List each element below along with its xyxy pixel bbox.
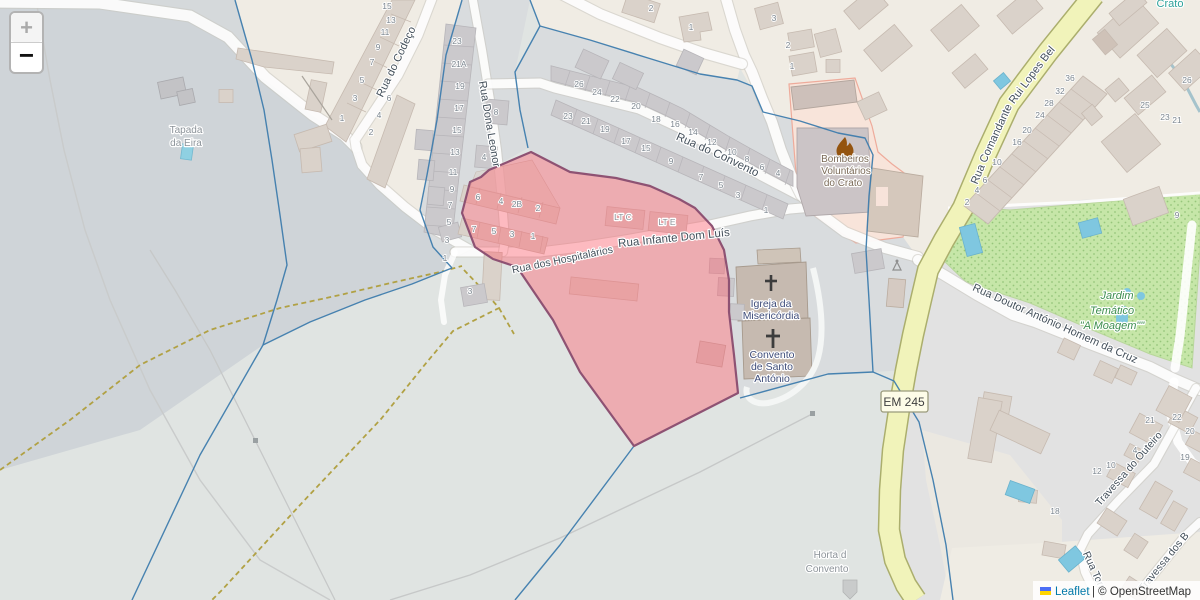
svg-text:4: 4 [975,185,980,195]
svg-text:de Santo: de Santo [751,361,793,373]
svg-text:Bombeiros: Bombeiros [821,154,869,165]
svg-text:7: 7 [699,172,704,182]
svg-text:20: 20 [631,101,641,111]
svg-text:LT C: LT C [614,212,632,222]
svg-text:1: 1 [689,22,694,32]
svg-text:4: 4 [377,110,382,120]
svg-text:3: 3 [772,13,777,23]
svg-text:25: 25 [1140,100,1150,110]
svg-text:15: 15 [382,1,392,11]
svg-text:16: 16 [670,119,680,129]
svg-text:21: 21 [1145,415,1155,425]
svg-text:António: António [754,373,790,385]
svg-text:16: 16 [1012,137,1022,147]
svg-text:7: 7 [472,224,477,234]
svg-text:Convento: Convento [806,564,849,575]
svg-text:da Eira: da Eira [170,138,202,149]
svg-text:4: 4 [1133,445,1138,455]
svg-text:3: 3 [353,93,358,103]
svg-text:1: 1 [790,61,795,71]
svg-text:36: 36 [1065,73,1075,83]
svg-text:24: 24 [592,87,602,97]
svg-text:23: 23 [452,36,462,46]
svg-text:6: 6 [387,93,392,103]
svg-text:1: 1 [340,113,345,123]
svg-text:32: 32 [1055,86,1065,96]
svg-text:5: 5 [447,217,452,227]
svg-text:Voluntários: Voluntários [821,166,870,177]
svg-text:24: 24 [1035,110,1045,120]
svg-text:6: 6 [476,192,481,202]
svg-text:15: 15 [641,143,651,153]
svg-text:do Crato: do Crato [824,178,863,189]
svg-text:2: 2 [965,197,970,207]
svg-text:| © OpenStreetMap: | © OpenStreetMap [1092,586,1191,598]
svg-text:Igreja da: Igreja da [751,298,792,310]
svg-text:3: 3 [468,286,473,296]
svg-text:2: 2 [536,203,541,213]
svg-text:LT E: LT E [658,217,675,227]
svg-text:Horta d: Horta d [814,550,847,561]
svg-text:21A: 21A [451,59,466,69]
svg-text:23: 23 [563,111,573,121]
svg-text:10: 10 [727,147,737,157]
svg-text:9: 9 [450,184,455,194]
svg-text:17: 17 [454,103,464,113]
svg-text:20: 20 [1185,426,1195,436]
svg-text:Tapada: Tapada [170,125,203,136]
svg-text:10: 10 [1106,460,1116,470]
svg-text:5: 5 [360,75,365,85]
svg-text:22: 22 [610,94,620,104]
svg-text:8: 8 [494,107,499,117]
svg-text:18: 18 [1050,506,1060,516]
svg-text:7: 7 [370,57,375,67]
svg-text:Jardim: Jardim [1099,290,1133,302]
svg-text:3: 3 [445,235,450,245]
svg-text:6: 6 [983,175,988,185]
svg-text:26: 26 [574,79,584,89]
svg-text:4: 4 [776,168,781,178]
svg-text:7: 7 [448,200,453,210]
svg-text:EM 245: EM 245 [883,395,925,409]
svg-text:26: 26 [1182,75,1192,85]
svg-text:17: 17 [621,136,631,146]
svg-text:Misericórdia: Misericórdia [743,310,800,322]
svg-text:Leaflet: Leaflet [1055,586,1090,598]
svg-text:+: + [20,15,33,40]
svg-text:2: 2 [369,127,374,137]
svg-text:10: 10 [992,157,1002,167]
svg-text:21: 21 [1172,115,1182,125]
svg-text:13: 13 [386,15,396,25]
svg-text:Convento: Convento [750,349,795,361]
svg-text:9: 9 [669,156,674,166]
svg-text:19: 19 [600,124,610,134]
svg-text:−: − [19,40,34,70]
svg-text:20: 20 [1022,125,1032,135]
svg-text:Temático: Temático [1090,305,1134,317]
svg-text:23: 23 [1160,112,1170,122]
svg-text:3: 3 [736,190,741,200]
svg-text:11: 11 [449,167,458,177]
svg-text:19: 19 [455,81,465,91]
svg-text:18: 18 [651,114,661,124]
svg-text:21: 21 [581,116,591,126]
svg-text:12: 12 [1092,466,1102,476]
svg-text:5: 5 [492,226,497,236]
svg-text:22: 22 [1172,412,1182,422]
svg-text:2B: 2B [512,199,523,209]
svg-text:2: 2 [649,3,654,13]
svg-text:8: 8 [745,154,750,164]
svg-text:1: 1 [443,253,448,263]
svg-text:13: 13 [450,147,460,157]
svg-text:15: 15 [452,125,462,135]
svg-text:1: 1 [764,205,769,215]
svg-text:2: 2 [786,40,791,50]
svg-text:11: 11 [381,27,390,37]
svg-text:4: 4 [482,152,487,162]
svg-text:9: 9 [1175,210,1180,220]
svg-text:14: 14 [688,127,698,137]
svg-text:1: 1 [531,231,536,241]
svg-text:3: 3 [510,229,515,239]
svg-text:6: 6 [760,162,765,172]
svg-text:12: 12 [707,137,717,147]
svg-text:19: 19 [1180,452,1190,462]
svg-text:"A Moagem"": "A Moagem"" [1080,320,1146,332]
svg-text:9: 9 [376,42,381,52]
svg-text:28: 28 [1044,98,1054,108]
svg-text:4: 4 [499,196,504,206]
svg-text:5: 5 [719,180,724,190]
svg-text:Crato: Crato [1157,0,1184,10]
